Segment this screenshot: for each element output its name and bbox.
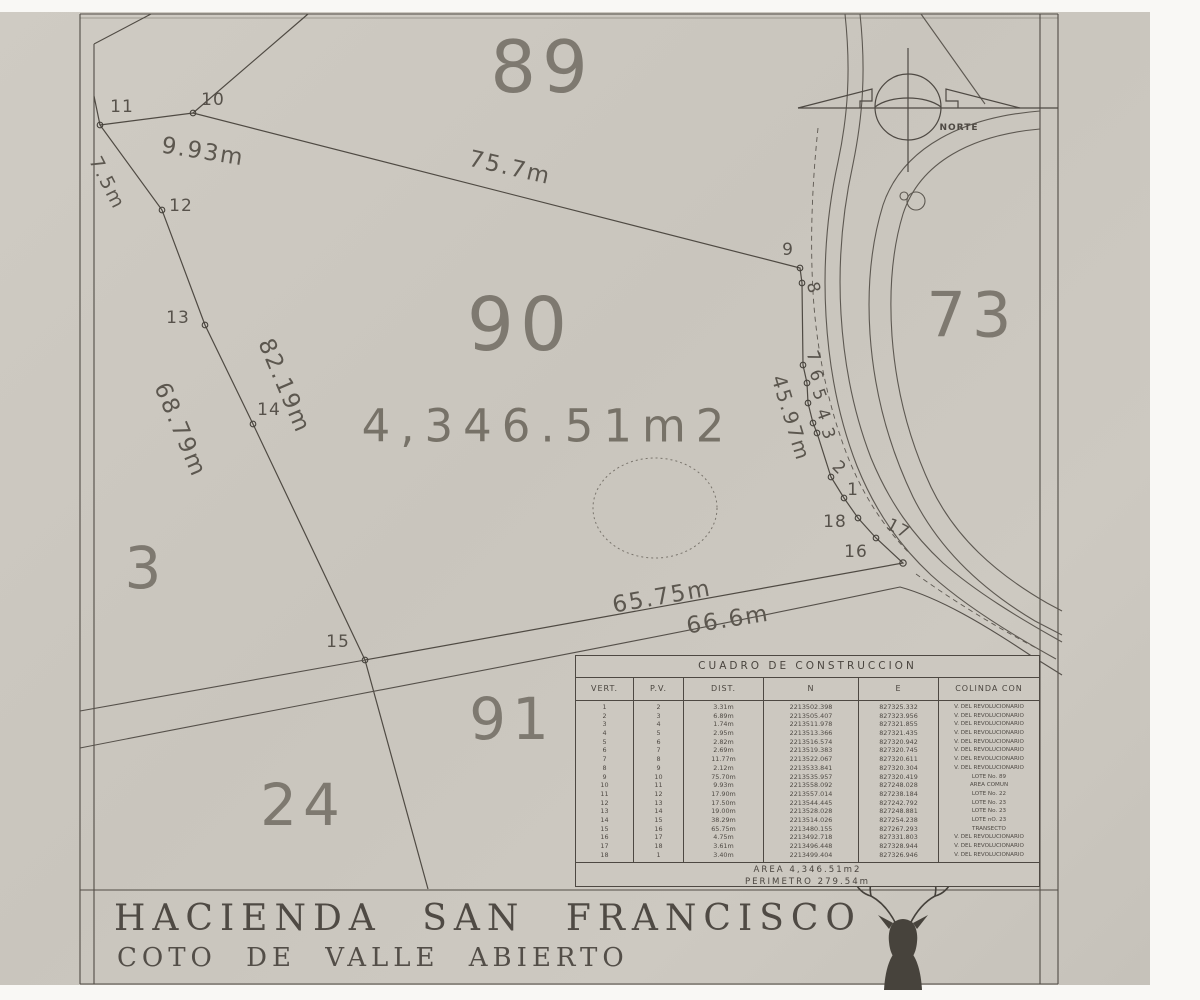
table-column: 2213502.3982213505.4072213511.9782213513…: [764, 701, 859, 862]
table-cell: 827248.028: [859, 781, 938, 790]
table-cell: 2: [576, 712, 633, 721]
table-cell: 1: [576, 703, 633, 712]
table-cell: 2213522.067: [764, 755, 858, 764]
table-column: V. DEL REVOLUCIONARIOV. DEL REVOLUCIONAR…: [939, 701, 1039, 862]
table-cell: V. DEL REVOLUCIONARIO: [939, 720, 1039, 729]
table-cell: 2213544.445: [764, 799, 858, 808]
table-cell: 827320.611: [859, 755, 938, 764]
table-cell: 827321.435: [859, 729, 938, 738]
table-cell: 827238.184: [859, 790, 938, 799]
column-header-n: N: [764, 678, 859, 700]
table-cell: TRANSECTO: [939, 825, 1039, 834]
table-cell: 2213535.957: [764, 773, 858, 782]
vertex-number-label: 13: [166, 308, 190, 328]
table-cell: 2213558.092: [764, 781, 858, 790]
column-header-pv: P.V.: [634, 678, 684, 700]
plan-title: HACIENDA SAN FRANCISCO: [114, 898, 862, 939]
table-cell: 17.90m: [684, 790, 763, 799]
table-cell: 4.75m: [684, 833, 763, 842]
table-cell: 827321.855: [859, 720, 938, 729]
table-cell: 1.74m: [684, 720, 763, 729]
vertex-number-label: 14: [257, 400, 281, 420]
table-cell: 38.29m: [684, 816, 763, 825]
table-cell: 2: [634, 703, 683, 712]
table-cell: 3: [576, 720, 633, 729]
table-cell: 9: [634, 764, 683, 773]
table-cell: 18: [576, 851, 633, 860]
plan-subtitle: COTO DE VALLE ABIERTO: [117, 943, 629, 973]
table-cell: 16: [576, 833, 633, 842]
table-cell: 3.31m: [684, 703, 763, 712]
table-cell: 3: [634, 712, 683, 721]
table-column: 123456789101112131415161718: [576, 701, 634, 862]
vertex-number-label: 9: [782, 240, 794, 260]
lot-number-label: 24: [260, 771, 346, 839]
table-cell: 2213533.841: [764, 764, 858, 773]
table-cell: 7: [634, 746, 683, 755]
table-cell: 2213480.155: [764, 825, 858, 834]
table-body: 1234567891011121314151617182345678910111…: [576, 701, 1039, 862]
table-column: 3.31m6.89m1.74m2.95m2.82m2.69m11.77m2.12…: [684, 701, 764, 862]
table-column: 827325.332827323.956827321.855827321.435…: [859, 701, 939, 862]
table-cell: 10: [576, 781, 633, 790]
table-cell: 6.89m: [684, 712, 763, 721]
vertex-number-label: 12: [169, 196, 193, 216]
table-cell: 2213492.718: [764, 833, 858, 842]
vertex-number-label: 10: [201, 90, 225, 110]
table-cell: 827242.792: [859, 799, 938, 808]
table-cell: 827323.956: [859, 712, 938, 721]
table-header: VERT. P.V. DIST. N E COLINDA CON: [576, 678, 1039, 701]
table-cell: V. DEL REVOLUCIONARIO: [939, 842, 1039, 851]
table-column: 234567891011121314151617181: [634, 701, 684, 862]
table-cell: V. DEL REVOLUCIONARIO: [939, 755, 1039, 764]
table-cell: 2213511.978: [764, 720, 858, 729]
table-cell: 7: [576, 755, 633, 764]
table-cell: 15: [576, 825, 633, 834]
table-cell: V. DEL REVOLUCIONARIO: [939, 738, 1039, 747]
table-cell: 2213514.026: [764, 816, 858, 825]
north-label: NORTE: [940, 123, 979, 133]
table-cell: 3.40m: [684, 851, 763, 860]
vertex-number-label: 11: [110, 97, 134, 117]
table-cell: 16: [634, 825, 683, 834]
table-cell: 827320.745: [859, 746, 938, 755]
lot-number-label: 3: [125, 534, 168, 602]
table-cell: 4: [576, 729, 633, 738]
table-cell: 17.50m: [684, 799, 763, 808]
table-cell: LOTE No. 22: [939, 790, 1039, 799]
table-cell: 9: [576, 773, 633, 782]
table-cell: 17: [576, 842, 633, 851]
vertex-number-label: 18: [823, 512, 847, 532]
table-perimeter-total: PERIMETRO 279.54m: [576, 876, 1039, 888]
table-cell: V. DEL REVOLUCIONARIO: [939, 851, 1039, 860]
lot-area-label: 4,346.51m2: [362, 400, 735, 453]
table-cell: 827248.881: [859, 807, 938, 816]
table-cell: 2.69m: [684, 746, 763, 755]
table-cell: 14: [576, 816, 633, 825]
table-cell: AREA COMUN: [939, 781, 1039, 790]
table-cell: 2213496.448: [764, 842, 858, 851]
table-cell: LOTE No. 23: [939, 799, 1039, 808]
table-cell: 827254.238: [859, 816, 938, 825]
table-cell: 2.12m: [684, 764, 763, 773]
table-cell: 2213557.014: [764, 790, 858, 799]
table-cell: 13: [576, 807, 633, 816]
table-cell: 75.70m: [684, 773, 763, 782]
table-cell: 18: [634, 842, 683, 851]
table-cell: 2213519.383: [764, 746, 858, 755]
table-cell: V. DEL REVOLUCIONARIO: [939, 729, 1039, 738]
lot-number-label: 89: [490, 25, 594, 109]
table-cell: 827320.304: [859, 764, 938, 773]
table-cell: 15: [634, 816, 683, 825]
table-cell: 2213528.028: [764, 807, 858, 816]
column-header-dist: DIST.: [684, 678, 764, 700]
table-cell: V. DEL REVOLUCIONARIO: [939, 712, 1039, 721]
table-cell: 11.77m: [684, 755, 763, 764]
lot-number-label: 90: [467, 282, 573, 368]
table-cell: 9.93m: [684, 781, 763, 790]
table-cell: 2213502.398: [764, 703, 858, 712]
lot-number-label: 91: [469, 685, 555, 753]
table-cell: 2213516.574: [764, 738, 858, 747]
table-cell: 14: [634, 807, 683, 816]
table-cell: 13: [634, 799, 683, 808]
table-cell: 6: [634, 738, 683, 747]
column-header-colinda: COLINDA CON: [939, 678, 1039, 700]
table-cell: V. DEL REVOLUCIONARIO: [939, 833, 1039, 842]
table-cell: 2.82m: [684, 738, 763, 747]
column-header-vert: VERT.: [576, 678, 634, 700]
table-cell: 5: [634, 729, 683, 738]
vertex-number-label: 15: [326, 632, 350, 652]
table-cell: 2213505.407: [764, 712, 858, 721]
table-cell: 827320.942: [859, 738, 938, 747]
table-cell: 12: [576, 799, 633, 808]
table-cell: 3.61m: [684, 842, 763, 851]
table-cell: 17: [634, 833, 683, 842]
table-cell: 4: [634, 720, 683, 729]
table-cell: 827320.419: [859, 773, 938, 782]
table-area-total: AREA 4,346.51m2: [576, 864, 1039, 876]
table-cell: LOTE No. 89: [939, 773, 1039, 782]
table-cell: LOTE nO. 23: [939, 816, 1039, 825]
table-cell: 10: [634, 773, 683, 782]
table-cell: 6: [576, 746, 633, 755]
table-cell: V. DEL REVOLUCIONARIO: [939, 703, 1039, 712]
table-cell: 19.00m: [684, 807, 763, 816]
construction-table: CUADRO DE CONSTRUCCION VERT. P.V. DIST. …: [575, 655, 1040, 887]
table-title: CUADRO DE CONSTRUCCION: [576, 656, 1039, 678]
table-cell: 12: [634, 790, 683, 799]
table-cell: 5: [576, 738, 633, 747]
table-cell: 8: [576, 764, 633, 773]
table-cell: LOTE No. 23: [939, 807, 1039, 816]
table-cell: 1: [634, 851, 683, 860]
table-cell: 8: [634, 755, 683, 764]
vertex-number-label: 1: [847, 480, 859, 500]
table-cell: 2213499.404: [764, 851, 858, 860]
table-cell: 11: [634, 781, 683, 790]
vertex-number-label: 16: [844, 542, 868, 562]
table-cell: 65.75m: [684, 825, 763, 834]
north-arrow-icon: [798, 48, 1058, 172]
table-footer: AREA 4,346.51m2 PERIMETRO 279.54m: [576, 862, 1039, 888]
table-cell: 827331.803: [859, 833, 938, 842]
table-cell: V. DEL REVOLUCIONARIO: [939, 746, 1039, 755]
table-cell: 827328.944: [859, 842, 938, 851]
column-header-e: E: [859, 678, 939, 700]
table-cell: 11: [576, 790, 633, 799]
table-cell: 827326.946: [859, 851, 938, 860]
table-cell: V. DEL REVOLUCIONARIO: [939, 764, 1039, 773]
table-cell: 2213513.366: [764, 729, 858, 738]
table-cell: 827325.332: [859, 703, 938, 712]
construction-circle: [593, 458, 717, 558]
table-cell: 827267.293: [859, 825, 938, 834]
lot-number-label: 73: [927, 279, 1018, 352]
table-cell: 2.95m: [684, 729, 763, 738]
